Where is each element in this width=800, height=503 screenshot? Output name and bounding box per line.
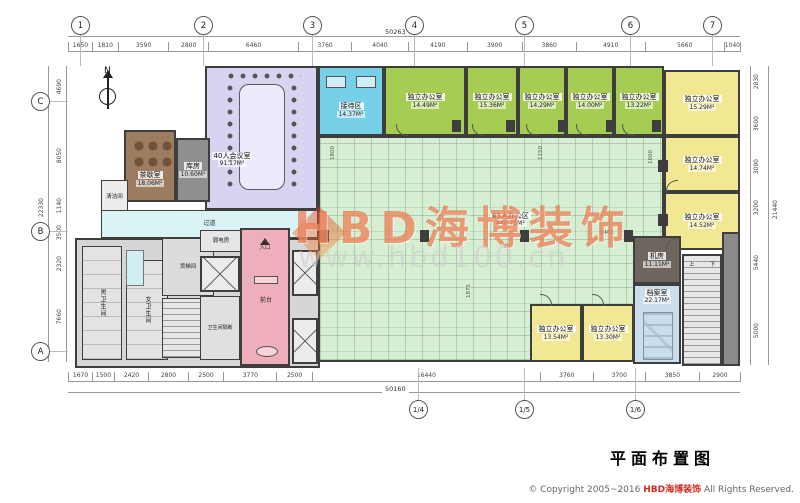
interior-dimension: 1150 <box>538 146 544 160</box>
dimension: 3850 <box>645 372 699 382</box>
interior-dimension: 1400 <box>600 230 614 236</box>
cafe-tables <box>132 138 172 172</box>
column <box>558 120 567 132</box>
room-area: 13.22M² <box>625 102 654 109</box>
grid-bubble-6: 6 <box>621 16 640 35</box>
corridor-label: 过道 <box>203 221 215 227</box>
grid-label: C <box>38 97 44 107</box>
room-private-office: 独立办公室 13.54M² <box>530 304 582 362</box>
grid-bubble-5: 5 <box>515 16 534 35</box>
dimension: 6460 <box>208 42 298 52</box>
grid-line <box>524 33 525 66</box>
dimension: 4040 <box>351 42 408 52</box>
shaft <box>722 232 740 366</box>
grid-label: 2 <box>201 21 206 31</box>
stairs-down-label: 下 <box>710 262 716 268</box>
column <box>506 120 515 132</box>
entrance-label: 入口 <box>259 245 270 251</box>
column <box>658 160 668 172</box>
room-storage: 库房 10.60M² <box>176 138 210 202</box>
room-name: 茶歇室 <box>138 171 163 179</box>
chairs-row <box>225 82 235 192</box>
dimension: 3200 <box>753 200 760 215</box>
room-front-desk: 入口 前台 <box>240 228 290 366</box>
grid-label: 1/6 <box>630 406 641 414</box>
room-area: 14.00M² <box>576 102 605 109</box>
room-name: 接待区 <box>339 102 364 110</box>
copyright-suffix: All Rights Reserved. <box>701 485 794 495</box>
dimension: 3860 <box>522 42 576 52</box>
room-name: 机房 <box>648 252 666 260</box>
column <box>606 120 615 132</box>
grid-label: 3 <box>310 21 315 31</box>
room-name: 独立办公室 <box>683 95 722 103</box>
room-conference: 40人会议室 91.17M² <box>205 66 318 210</box>
room-area: 91.17M² <box>218 160 247 167</box>
interior-dimension: 1600 <box>648 150 654 164</box>
room-area: 13.54M² <box>542 334 571 341</box>
grid-line <box>49 231 68 232</box>
dimension: 4690 <box>56 79 63 94</box>
copyright-prefix: © Copyright 2005~2016 <box>528 485 643 495</box>
drawing-title: 平面布置图 <box>610 445 715 469</box>
grid-bubble-1-6: 1/6 <box>626 400 645 419</box>
room-name: 65人办公区 <box>490 212 531 220</box>
room-area: 14.74M² <box>688 165 717 172</box>
room-area: 18.06M² <box>136 180 165 187</box>
room-name: 男卫生间 <box>99 289 105 317</box>
entrance-marker: 入口 <box>242 238 288 251</box>
room-private-office: 独立办公室 15.29M² <box>664 70 740 136</box>
dimension: 5440 <box>753 255 760 270</box>
grid-line <box>635 368 636 400</box>
dimension-line <box>750 66 751 365</box>
room-name: 清洁间 <box>106 194 123 200</box>
grid-label: 1/5 <box>519 406 530 414</box>
dimension: 3700 <box>593 372 645 382</box>
room-area: 14.29M² <box>528 102 557 109</box>
dimension: 2830 <box>753 74 760 89</box>
archive-shelves <box>643 312 673 360</box>
room-area: 22.17M² <box>643 297 672 304</box>
room-name: 独立办公室 <box>683 156 722 164</box>
interior-dimension: 1800 <box>330 146 336 160</box>
room-area: 13.30M² <box>594 334 623 341</box>
grid-bubble-4: 4 <box>405 16 424 35</box>
room-tea-break: 茶歇室 18.06M² <box>124 130 176 202</box>
room-label: 档案室 22.17M² <box>635 289 679 304</box>
room-name: 卫生间隔断 <box>207 325 232 331</box>
room-name: 独立办公室 <box>589 325 628 333</box>
room-name: 独立办公室 <box>620 93 659 101</box>
grid-line <box>49 351 68 352</box>
dimension: 16440 <box>312 372 540 382</box>
floor-plan-canvas: 1 2 3 4 5 6 7 C B A 1/4 1/5 1/6 50263 16… <box>0 0 800 503</box>
elevator <box>292 250 318 296</box>
dimension: 2500 <box>188 372 224 382</box>
dimension: 1670 <box>68 372 92 382</box>
dimension: 2320 <box>56 256 63 271</box>
bottom-total-dimension: 50160 <box>382 385 409 393</box>
dimension: 3760 <box>540 372 593 382</box>
dimension: 1140 <box>56 198 63 213</box>
grid-line <box>524 368 525 400</box>
north-arrow: N <box>96 66 120 114</box>
elevator <box>292 318 318 364</box>
column <box>420 230 429 242</box>
grid-line <box>80 33 81 66</box>
north-needle <box>107 77 109 109</box>
room-area: 15.29M² <box>688 104 717 111</box>
column <box>652 120 661 132</box>
room-low-voltage: 弱电房 <box>200 230 242 252</box>
dimension: 3090 <box>753 159 760 174</box>
grid-bubble-3: 3 <box>303 16 322 35</box>
dimension-line <box>48 66 49 362</box>
room-cleaning: 清洁间 <box>101 180 128 213</box>
top-dimension-row: 1650 1810 3590 2800 6460 3760 4040 4190 … <box>68 42 741 52</box>
room-wc-partition: 卫生间隔断 <box>200 296 240 360</box>
room-name: 独立办公室 <box>683 213 722 221</box>
grid-label: 1/4 <box>413 406 424 414</box>
top-total-dimension: 50263 <box>382 28 409 36</box>
dimension: 3900 <box>467 42 522 52</box>
left-total-dimension: 22330 <box>38 198 45 217</box>
grid-line <box>49 101 68 102</box>
dimension: 2800 <box>148 372 188 382</box>
bottom-dimension-row: 1670 1500 2420 2800 2500 3770 2500 16440… <box>68 372 741 382</box>
reception-desk <box>254 276 278 284</box>
room-name: 弱电房 <box>213 238 230 244</box>
room-name: 档案室 <box>645 289 670 297</box>
grid-bubble-A: A <box>31 342 50 361</box>
column <box>452 120 461 132</box>
interior-dimension: 1875 <box>466 284 472 298</box>
dimension: 3590 <box>118 42 169 52</box>
dimension: 2420 <box>114 372 148 382</box>
grid-label: 4 <box>412 21 417 31</box>
room-area: 11.11M² <box>643 261 672 268</box>
room-area: 15.36M² <box>478 102 507 109</box>
grid-bubble-1: 1 <box>71 16 90 35</box>
column <box>658 214 668 226</box>
grid-bubble-1-5: 1/5 <box>515 400 534 419</box>
dimension: 3770 <box>223 372 276 382</box>
room-mens-toilet: 男卫生间 <box>82 246 122 360</box>
dimension: 8050 <box>56 148 63 163</box>
room-label: 65人办公区 440.75M² <box>490 212 531 227</box>
room-area: 14.37M² <box>337 111 366 118</box>
elevator <box>200 256 240 292</box>
room-name: 库房 <box>184 162 202 170</box>
grid-label: A <box>38 347 44 357</box>
dimension: 3500 <box>56 225 63 240</box>
copyright-brand: HBD海博装饰 <box>643 485 701 495</box>
grid-label: B <box>38 227 44 237</box>
chairs-row <box>289 82 299 192</box>
grid-line <box>712 33 713 66</box>
room-name: 40人会议室 <box>212 152 253 160</box>
grid-label: 5 <box>522 21 527 31</box>
grid-bubble-2: 2 <box>194 16 213 35</box>
dimension: 1500 <box>92 372 114 382</box>
room-archive: 档案室 22.17M² <box>633 284 681 364</box>
grid-label: 7 <box>710 21 715 31</box>
sofa <box>356 76 376 88</box>
sofa <box>256 346 278 357</box>
room-reception-area: 接待区 14.37M² <box>318 66 384 136</box>
room-name: 货梯间 <box>180 264 197 270</box>
dimension: 7660 <box>56 309 63 324</box>
copyright-line: © Copyright 2005~2016 HBD海博装饰 All Rights… <box>528 482 794 495</box>
dimension: 3600 <box>753 116 760 131</box>
grid-label: 1 <box>78 21 83 31</box>
dimension: 1040 <box>724 42 740 52</box>
grid-bubble-1-4: 1/4 <box>409 400 428 419</box>
dimension: 3760 <box>298 42 351 52</box>
dimension: 4910 <box>576 42 645 52</box>
room-name: 独立办公室 <box>537 325 576 333</box>
grid-line <box>418 368 419 400</box>
right-total-dimension: 21440 <box>772 200 779 219</box>
dimension-line <box>66 66 67 362</box>
column <box>520 230 529 242</box>
room-label: 40人会议室 91.17M² <box>209 152 255 167</box>
dimension: 2900 <box>699 372 740 382</box>
grid-line <box>630 33 631 66</box>
room-area: 14.49M² <box>411 102 440 109</box>
stairs-up-label: 上 <box>689 262 695 268</box>
room-name: 女卫生间 <box>144 296 150 324</box>
sofa <box>326 76 346 88</box>
grid-line <box>414 33 415 66</box>
room-name: 独立办公室 <box>473 93 512 101</box>
dimension: 4190 <box>408 42 467 52</box>
chairs-row <box>225 71 301 81</box>
entrance-arrow-icon <box>260 238 270 245</box>
grid-bubble-C: C <box>31 92 50 111</box>
room-name: 独立办公室 <box>571 93 610 101</box>
dimension: 2500 <box>276 372 312 382</box>
room-area: 10.60M² <box>179 171 208 178</box>
room-name: 独立办公室 <box>523 93 562 101</box>
column <box>624 230 633 242</box>
conference-table <box>239 84 285 190</box>
dimension-line <box>768 66 769 365</box>
room-area: 14.52M² <box>688 222 717 229</box>
grid-label: 6 <box>628 21 633 31</box>
grid-bubble-7: 7 <box>703 16 722 35</box>
dimension-line <box>68 36 740 37</box>
stairwell: 上 下 <box>682 254 722 366</box>
grid-line <box>312 33 313 66</box>
grid-line <box>203 33 204 66</box>
lobby-strip <box>126 250 144 286</box>
room-name: 前台 <box>260 298 272 304</box>
dimension: 1810 <box>92 42 118 52</box>
grid-bubble-B: B <box>31 222 50 241</box>
room-area: 440.75M² <box>494 220 527 227</box>
dimension: 5000 <box>753 323 760 338</box>
room-name: 独立办公室 <box>406 93 445 101</box>
room-private-office: 独立办公室 13.30M² <box>582 304 634 362</box>
